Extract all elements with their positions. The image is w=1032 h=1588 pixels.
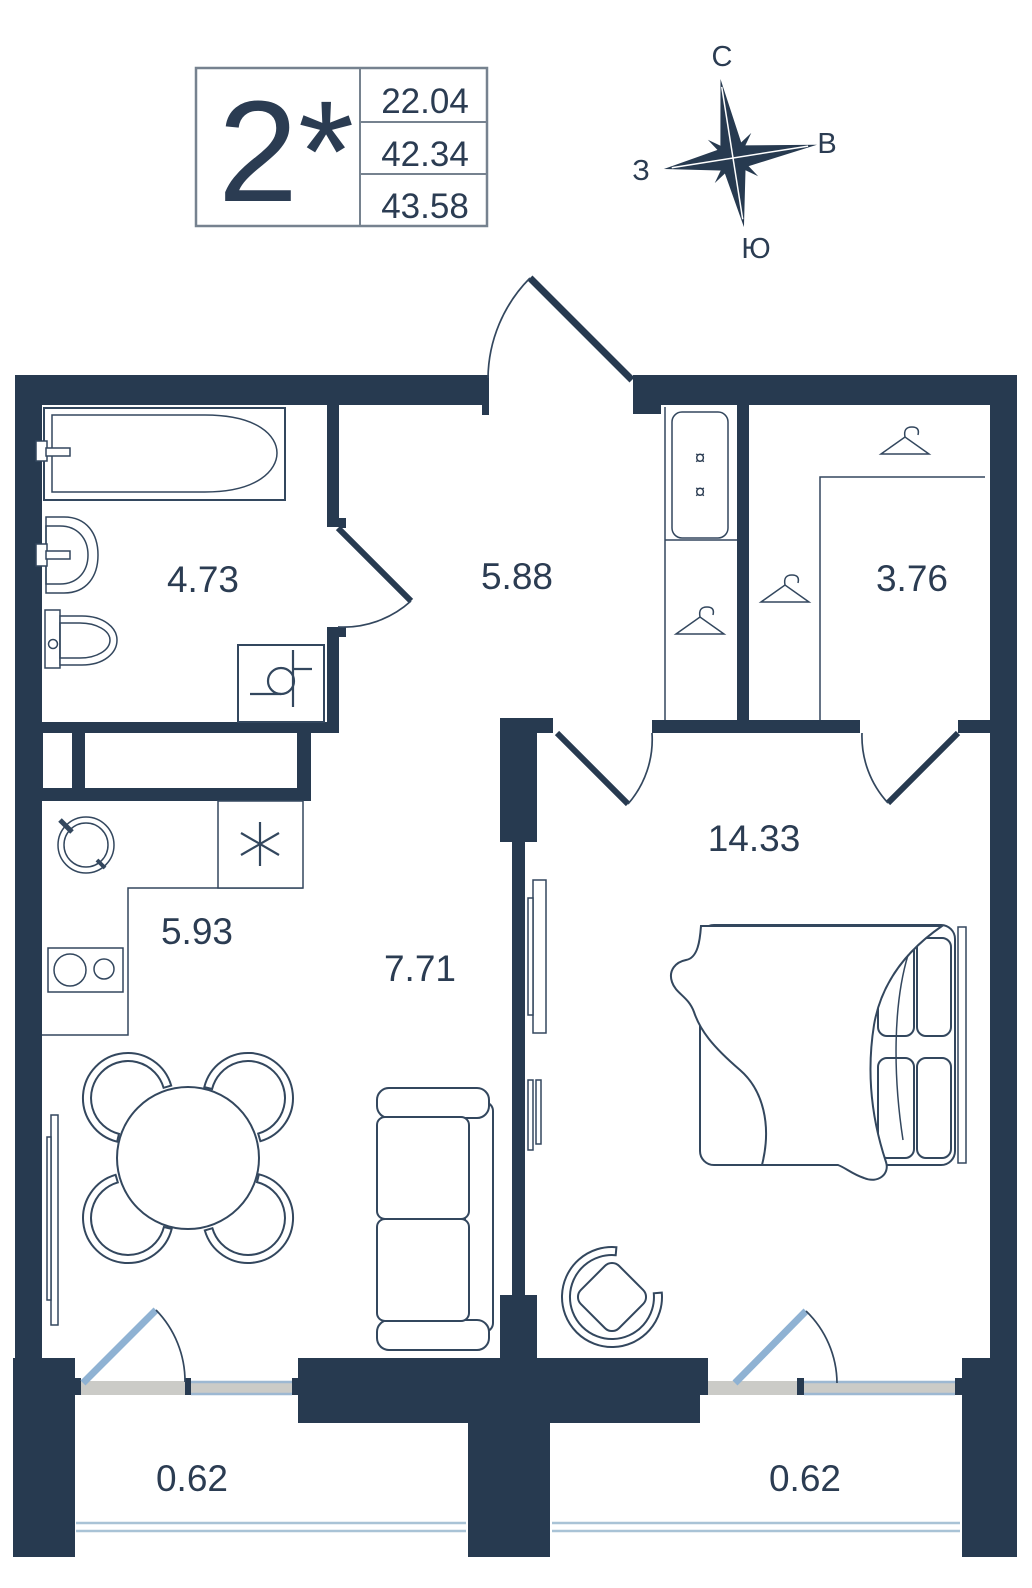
stove bbox=[48, 948, 123, 992]
floor-plan: 2* 22.04 42.34 43.58 С В З Ю bbox=[0, 0, 1032, 1588]
bathroom-area-label: 4.73 bbox=[167, 559, 239, 600]
wardrobe-door-leaf bbox=[888, 733, 958, 803]
basin-spout bbox=[46, 551, 70, 559]
armchair bbox=[562, 1247, 662, 1347]
toilet bbox=[45, 610, 117, 668]
balcony-right-area-label: 0.62 bbox=[769, 1458, 841, 1499]
balcony-threshold bbox=[708, 1381, 797, 1395]
pillow bbox=[917, 1058, 951, 1158]
hallway: ¤ ¤ 5.88 bbox=[481, 407, 737, 720]
balcony-door-leaf bbox=[735, 1311, 806, 1383]
wardrobe-door-arc bbox=[862, 733, 888, 803]
pillow bbox=[917, 938, 951, 1036]
wardrobe-room: 3.76 bbox=[761, 427, 985, 803]
bathroom: 4.73 bbox=[36, 408, 411, 722]
living-area-label: 7.71 bbox=[384, 948, 456, 989]
dining-table bbox=[117, 1087, 259, 1229]
bedroom-door-leaf bbox=[557, 733, 628, 804]
legend-room-count: 2* bbox=[218, 71, 354, 232]
balcony-left-area-label: 0.62 bbox=[156, 1458, 228, 1499]
duct-niche-left bbox=[43, 733, 72, 788]
balcony-threshold bbox=[81, 1381, 185, 1395]
bedroom-area-label: 14.33 bbox=[708, 818, 801, 859]
balcony-door-leaf bbox=[83, 1310, 156, 1383]
balcony-door-arc bbox=[806, 1311, 837, 1383]
entrance-door-arc bbox=[488, 278, 530, 378]
legend-value-total: 43.58 bbox=[381, 187, 469, 226]
shoe-cabinet bbox=[672, 412, 728, 538]
bathroom-door-arc bbox=[338, 601, 411, 627]
balcony-door-arc bbox=[156, 1310, 185, 1382]
compass: С В З Ю bbox=[632, 41, 836, 265]
floor-plan-page: 2* 22.04 42.34 43.58 С В З Ю bbox=[0, 0, 1032, 1588]
sofa bbox=[377, 1088, 493, 1350]
legend: 2* 22.04 42.34 43.58 bbox=[196, 68, 487, 232]
cabinet-symbol: ¤ bbox=[695, 448, 706, 469]
legend-value-area: 42.34 bbox=[381, 135, 469, 174]
headboard bbox=[958, 927, 966, 1163]
hallway-area-label: 5.88 bbox=[481, 556, 553, 597]
bathtub-spout bbox=[46, 448, 70, 456]
water-heater bbox=[238, 645, 324, 722]
legend-value-living: 22.04 bbox=[381, 82, 469, 121]
entrance-door bbox=[488, 278, 632, 380]
compass-east-label: В bbox=[817, 128, 836, 160]
kitchen-sink bbox=[58, 817, 114, 873]
hanger-icon bbox=[881, 427, 929, 454]
entrance-door-leaf bbox=[530, 278, 632, 380]
living-area: 7.71 bbox=[47, 948, 493, 1350]
bedroom-door-arc bbox=[628, 733, 652, 804]
compass-west-label: З bbox=[632, 155, 650, 187]
hanger-icon bbox=[676, 607, 724, 634]
bed bbox=[671, 925, 966, 1180]
cabinet-symbol: ¤ bbox=[695, 482, 706, 503]
kitchen-area-label: 5.93 bbox=[161, 911, 233, 952]
duct-niche-right bbox=[85, 733, 297, 788]
radiator bbox=[528, 1080, 541, 1150]
hanger-icon bbox=[761, 575, 809, 602]
tv-panel bbox=[47, 1115, 58, 1325]
bedroom-tv-panel bbox=[528, 880, 546, 1033]
kitchen: 5.93 bbox=[42, 801, 303, 1035]
bathroom-door-leaf bbox=[338, 528, 411, 601]
wardrobe-area-label: 3.76 bbox=[876, 558, 948, 599]
compass-south-label: Ю bbox=[741, 233, 770, 265]
bedroom: 14.33 bbox=[528, 733, 966, 1347]
compass-star-icon bbox=[651, 66, 828, 238]
compass-north-label: С bbox=[712, 41, 733, 73]
